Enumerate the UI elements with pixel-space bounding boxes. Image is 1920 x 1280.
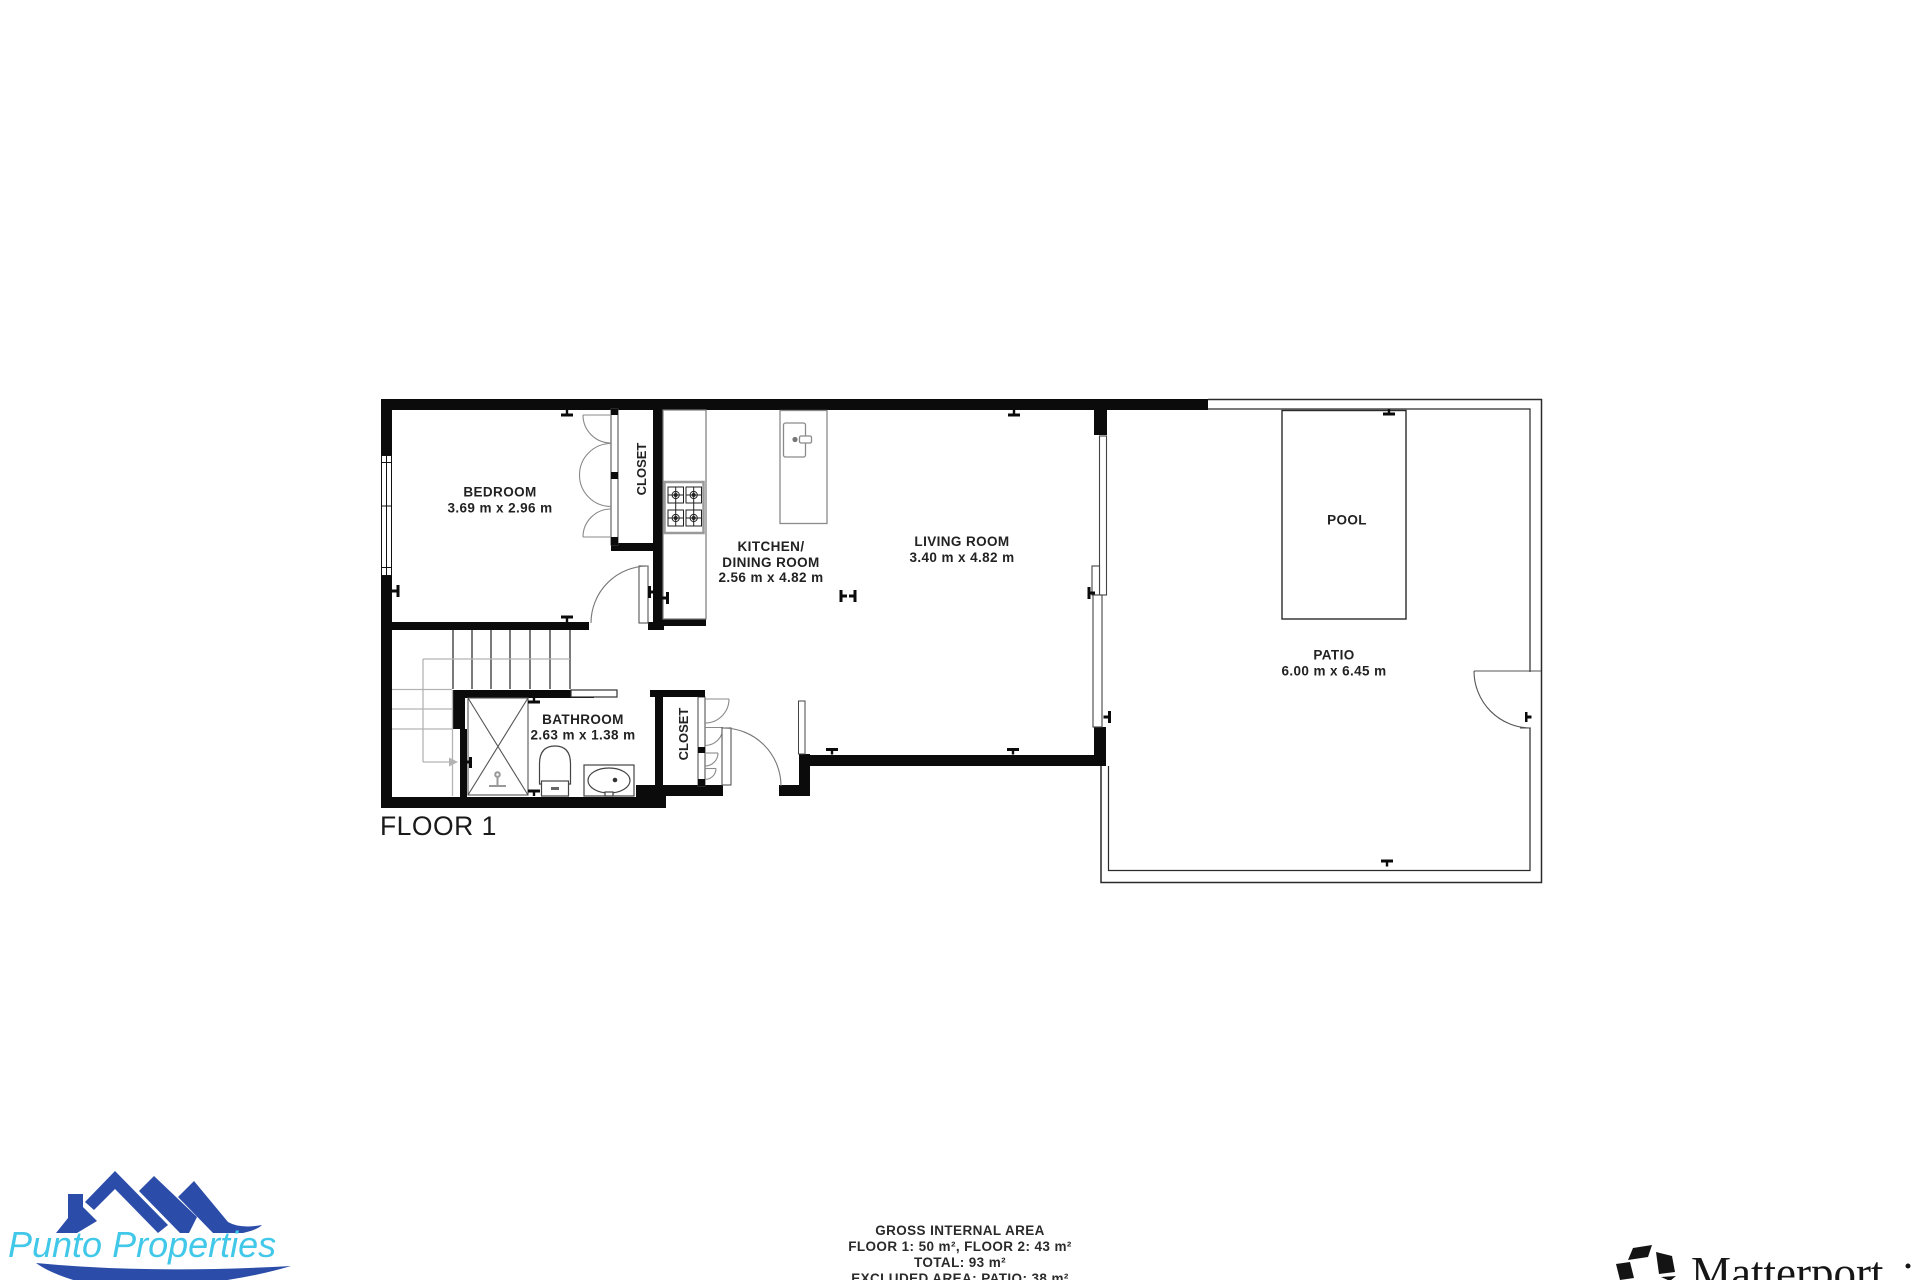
svg-text:CLOSET: CLOSET xyxy=(676,708,691,761)
svg-text:BATHROOM: BATHROOM xyxy=(542,712,624,727)
svg-text:PATIO: PATIO xyxy=(1313,648,1354,663)
svg-text:GROSS INTERNAL AREA: GROSS INTERNAL AREA xyxy=(875,1223,1045,1238)
svg-text:FLOOR 1: FLOOR 1 xyxy=(380,811,497,841)
svg-text:2.56 m x 4.82 m: 2.56 m x 4.82 m xyxy=(718,570,823,585)
svg-text:DINING ROOM: DINING ROOM xyxy=(722,555,819,570)
svg-text:6.00 m x 6.45 m: 6.00 m x 6.45 m xyxy=(1281,664,1386,679)
svg-text:Punto Properties: Punto Properties xyxy=(8,1224,276,1265)
svg-text:3.69 m x 2.96 m: 3.69 m x 2.96 m xyxy=(447,501,552,516)
svg-text:Matterport: Matterport xyxy=(1691,1248,1884,1280)
svg-text:CLOSET: CLOSET xyxy=(634,443,649,496)
svg-text:BEDROOM: BEDROOM xyxy=(463,485,536,500)
svg-text:2.63 m x 1.38 m: 2.63 m x 1.38 m xyxy=(530,728,635,743)
svg-text:POOL: POOL xyxy=(1327,513,1367,528)
svg-text:TOTAL: 93 m²: TOTAL: 93 m² xyxy=(914,1255,1006,1270)
svg-text:KITCHEN/: KITCHEN/ xyxy=(738,539,805,554)
svg-text:FLOOR 1: 50 m², FLOOR 2: 43 m²: FLOOR 1: 50 m², FLOOR 2: 43 m² xyxy=(848,1239,1072,1254)
svg-text:3.40 m x 4.82 m: 3.40 m x 4.82 m xyxy=(909,550,1014,565)
svg-text:LIVING ROOM: LIVING ROOM xyxy=(914,534,1009,549)
svg-text:EXCLUDED AREA: PATIO: 38 m²: EXCLUDED AREA: PATIO: 38 m² xyxy=(851,1271,1069,1280)
